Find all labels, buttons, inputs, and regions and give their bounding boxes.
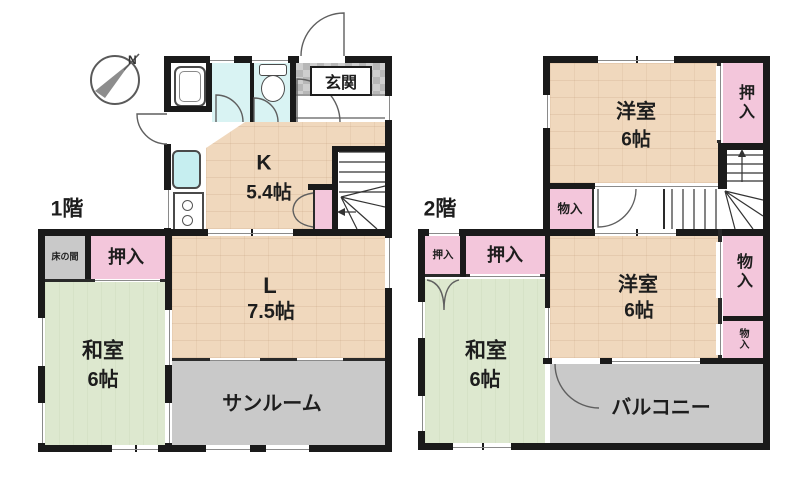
room-living bbox=[172, 236, 385, 358]
window bbox=[164, 190, 171, 228]
window bbox=[543, 95, 550, 128]
compass-needle bbox=[95, 62, 131, 98]
front-door-arc bbox=[301, 13, 344, 56]
window bbox=[38, 318, 45, 366]
western-north-size: 6帖 bbox=[621, 131, 651, 150]
hall-step-line bbox=[296, 117, 385, 119]
wall-segment bbox=[592, 189, 594, 229]
window bbox=[252, 56, 288, 63]
wall-segment bbox=[313, 190, 315, 229]
toilet-bowl bbox=[261, 75, 285, 102]
closet-north-label: 押入 bbox=[736, 84, 752, 122]
room-western-north bbox=[550, 63, 718, 183]
floor2-label: 2階 bbox=[424, 199, 457, 220]
living-name: L bbox=[263, 275, 276, 297]
window bbox=[453, 443, 511, 450]
japanese-room-2f-name: 和室 bbox=[465, 341, 507, 362]
tokonoma-label: 床の間 bbox=[51, 253, 78, 262]
sliding-door-opening bbox=[165, 403, 172, 443]
side-door-arc bbox=[137, 114, 167, 144]
closet-door-line bbox=[95, 279, 160, 282]
sliding-door-opening bbox=[208, 229, 293, 236]
window bbox=[112, 445, 158, 452]
hall-2f bbox=[595, 189, 663, 229]
storage-east-small-label: 物入 bbox=[737, 328, 747, 350]
closet-1f-label: 押入 bbox=[108, 248, 144, 266]
hall-storage-label: 物入 bbox=[557, 203, 582, 216]
wall-segment bbox=[332, 146, 338, 236]
window bbox=[206, 445, 250, 452]
window bbox=[418, 302, 425, 338]
kitchen-name: K bbox=[256, 153, 271, 174]
closet-door-line bbox=[470, 274, 540, 277]
western-south-size: 6帖 bbox=[624, 302, 654, 321]
wall-segment bbox=[763, 229, 770, 450]
western-north-name: 洋室 bbox=[616, 102, 656, 122]
understairs-storage bbox=[315, 190, 333, 229]
stove-burner bbox=[182, 200, 193, 211]
sliding-door-opening bbox=[545, 308, 550, 358]
floor1-label: 1階 bbox=[51, 199, 84, 220]
staircase-1f bbox=[338, 152, 385, 229]
western-south-name: 洋室 bbox=[618, 275, 658, 295]
window bbox=[38, 403, 45, 443]
kitchen-size: 5.4帖 bbox=[246, 184, 291, 203]
balcony-door-opening bbox=[552, 358, 600, 364]
compass: N bbox=[91, 53, 139, 104]
wall-segment bbox=[332, 146, 385, 152]
room-washroom bbox=[212, 63, 250, 122]
sliding-door-opening bbox=[165, 310, 172, 365]
entrance-label: 玄関 bbox=[325, 69, 357, 93]
closet-main-2f-label: 押入 bbox=[487, 246, 523, 264]
balcony-label: バルコニー bbox=[611, 398, 711, 418]
front-door-opening bbox=[299, 56, 345, 63]
window bbox=[385, 238, 392, 288]
storage-east-large-label: 物入 bbox=[734, 253, 750, 291]
side-door-opening bbox=[164, 112, 171, 144]
wall-segment bbox=[206, 56, 212, 112]
stove-burner bbox=[182, 215, 193, 226]
window bbox=[429, 229, 459, 236]
wall-segment bbox=[460, 229, 466, 277]
bathtub bbox=[174, 66, 206, 107]
wall-segment bbox=[164, 106, 212, 112]
japanese-room-1f-name: 和室 bbox=[82, 341, 124, 362]
window bbox=[266, 445, 309, 452]
closet-door-line bbox=[716, 66, 723, 140]
window bbox=[598, 56, 674, 63]
window bbox=[418, 396, 425, 431]
wall-segment bbox=[663, 189, 665, 229]
closet-small-2f-label: 押入 bbox=[433, 250, 454, 261]
sliding-door-opening bbox=[595, 183, 718, 189]
wall-segment bbox=[290, 56, 296, 122]
floor-plan: N 1階 2階 bbox=[0, 0, 800, 500]
wall-segment bbox=[385, 56, 392, 236]
sliding-door-opening bbox=[595, 229, 676, 236]
wall-segment bbox=[543, 183, 595, 189]
wall-segment bbox=[85, 236, 91, 279]
room-western-south bbox=[550, 236, 718, 358]
window bbox=[210, 56, 234, 63]
wall-segment bbox=[172, 358, 385, 361]
wall-segment bbox=[718, 143, 727, 189]
bathtub-inner bbox=[179, 71, 201, 102]
wall-segment bbox=[543, 56, 550, 236]
japanese-room-2f-size: 6帖 bbox=[469, 370, 500, 390]
entrance-label-box: 玄関 bbox=[310, 66, 372, 96]
japanese-room-1f-size: 6帖 bbox=[87, 370, 118, 390]
window bbox=[385, 96, 392, 120]
closet-door-line bbox=[716, 324, 723, 355]
sunroom-label: サンルーム bbox=[222, 394, 321, 414]
window bbox=[612, 358, 700, 364]
closet-door-line bbox=[716, 242, 723, 298]
living-size: 7.5帖 bbox=[247, 302, 295, 322]
kitchen-stove bbox=[173, 192, 204, 233]
sliding-door-opening bbox=[297, 358, 343, 361]
wall-segment bbox=[723, 316, 770, 321]
kitchen-sink bbox=[172, 150, 201, 189]
compass-north-label: N bbox=[128, 53, 137, 67]
room-japanese-1f bbox=[45, 281, 165, 445]
wall-segment bbox=[250, 56, 254, 122]
sliding-door-opening bbox=[210, 358, 260, 361]
